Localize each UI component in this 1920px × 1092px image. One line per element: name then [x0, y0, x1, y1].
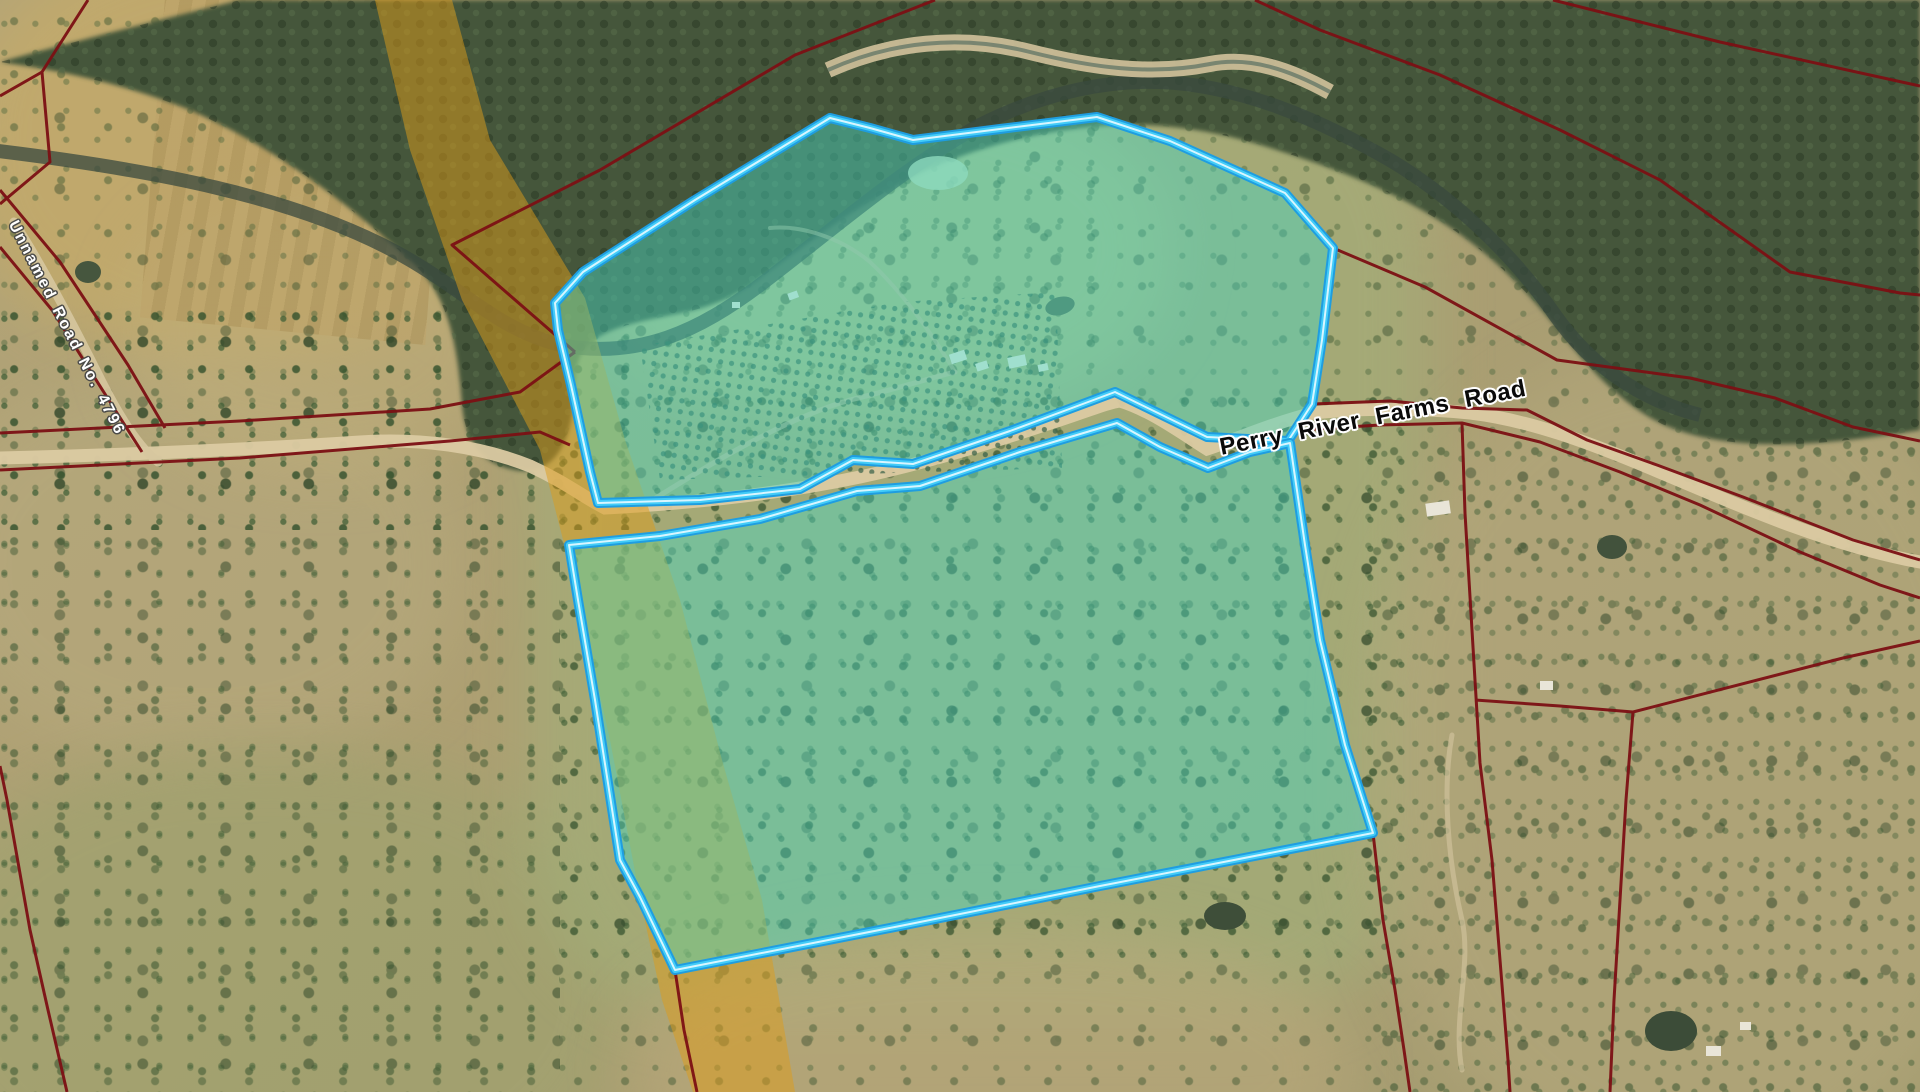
- building: [1706, 1046, 1721, 1056]
- dam: [1597, 535, 1627, 559]
- cadastral-line: [0, 72, 42, 96]
- farm-track-east: [1447, 735, 1465, 1070]
- cadastral-line: [0, 190, 165, 428]
- dam: [75, 261, 101, 283]
- dam: [1204, 902, 1246, 930]
- cadastral-line: [0, 766, 67, 1092]
- cadastral-line: [1373, 833, 1410, 1092]
- cadastral-line: [0, 0, 88, 204]
- map-overlay-svg: [0, 0, 1920, 1092]
- aerial-cadastral-map: Perry River Farms Road Unnamed Road No. …: [0, 0, 1920, 1092]
- cadastral-line: [1475, 700, 1633, 712]
- building: [1425, 500, 1451, 516]
- building: [1740, 1022, 1751, 1030]
- building: [1540, 681, 1553, 690]
- dam: [1645, 1011, 1697, 1051]
- cadastral-line: [1462, 423, 1510, 1092]
